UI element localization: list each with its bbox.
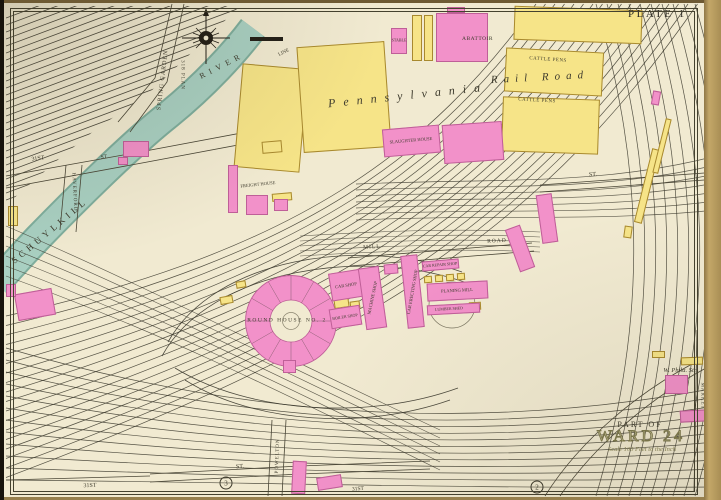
- page-edge-right: [704, 0, 721, 500]
- atlas-photo: PLATE 1 SCHUYLKILL RIVER LINE Pennsylvan…: [0, 0, 721, 500]
- map-border-inner: [13, 11, 695, 492]
- page-edge-left: [0, 0, 4, 500]
- page-edge-top: [0, 0, 721, 3]
- map-canvas: PLATE 1 SCHUYLKILL RIVER LINE Pennsylvan…: [0, 0, 721, 500]
